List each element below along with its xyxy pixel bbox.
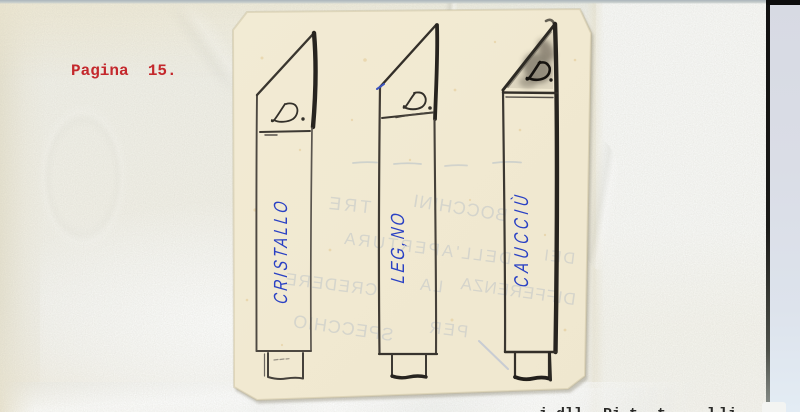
svg-text:CAUCCIÙ: CAUCCIÙ <box>509 189 533 288</box>
svg-text:CRISTALLO: CRISTALLO <box>270 197 291 305</box>
svg-text:LEG,NO: LEG,NO <box>386 210 408 285</box>
